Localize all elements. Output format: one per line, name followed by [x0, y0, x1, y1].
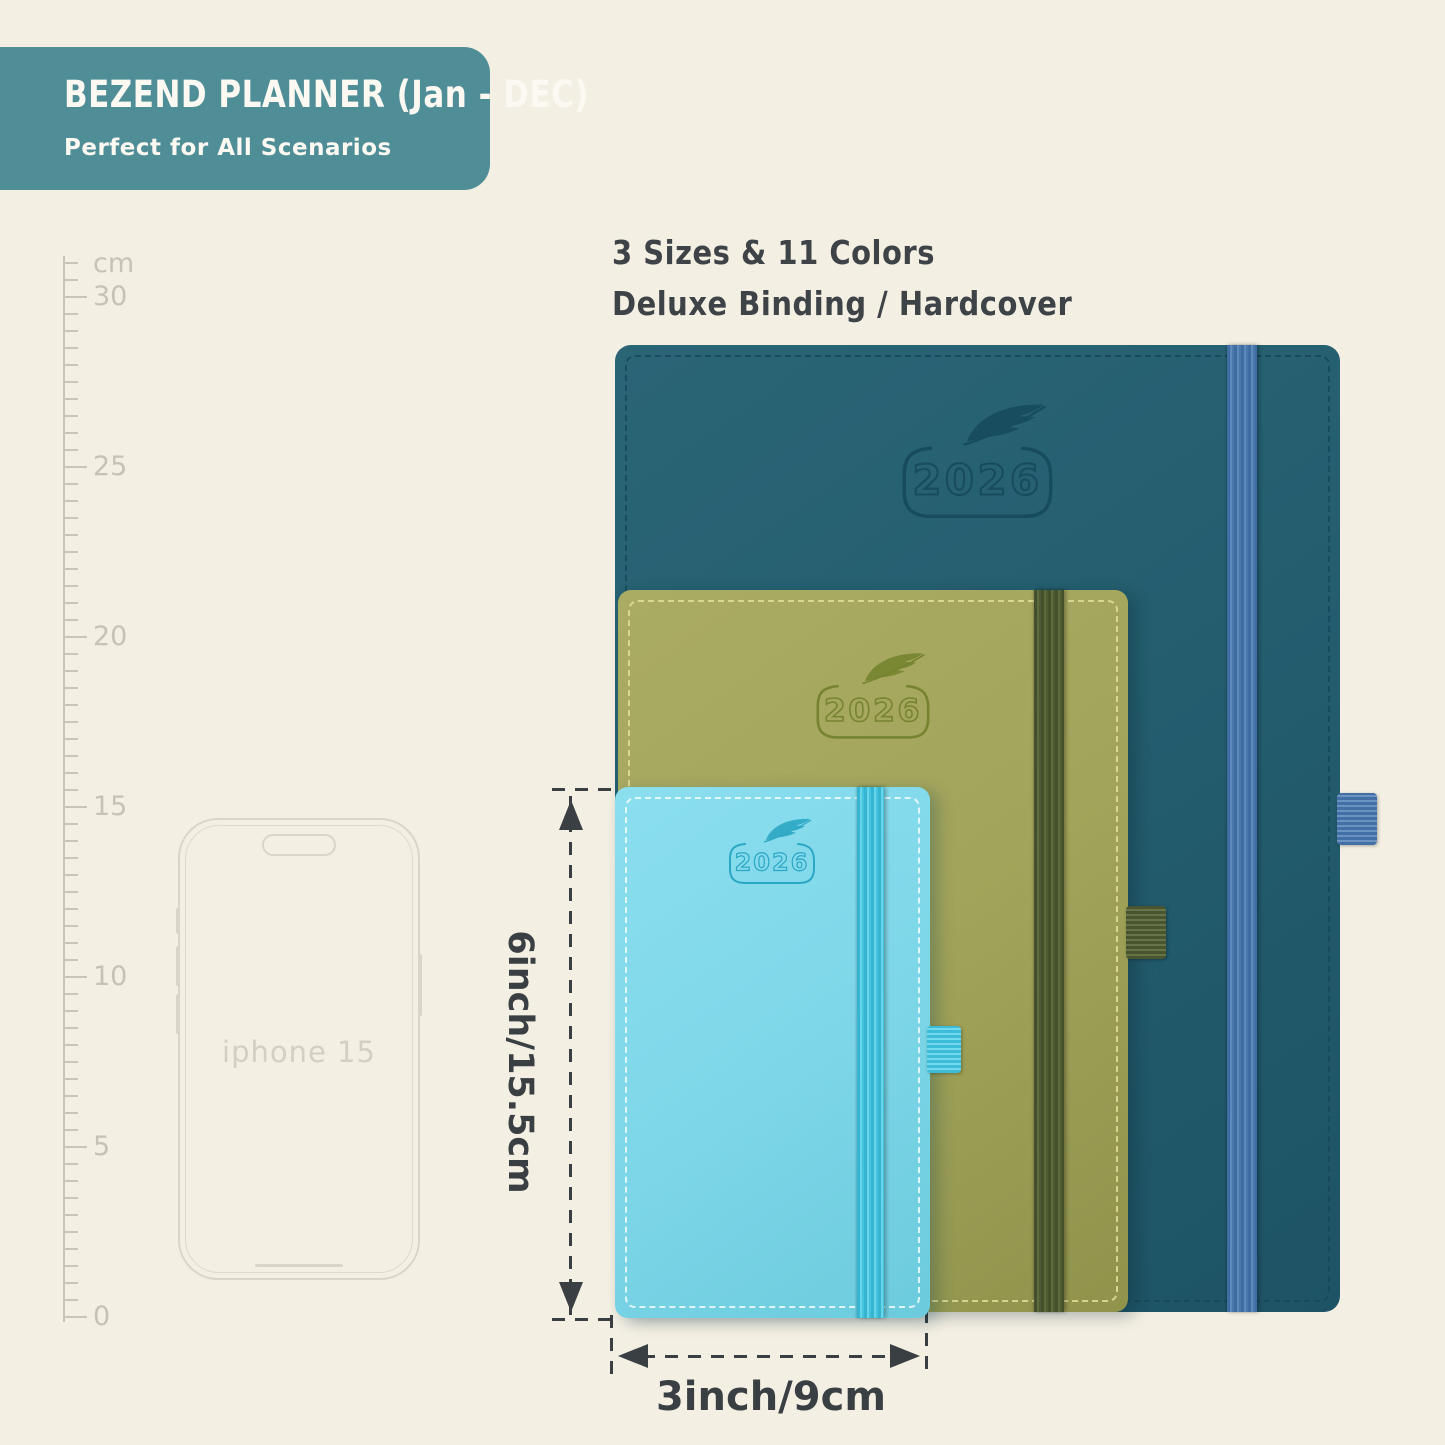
feather-icon — [766, 819, 810, 840]
width-label: 3inch/9cm — [656, 1374, 886, 1420]
pen-loop — [1126, 906, 1166, 959]
planner-small-blue: 2026 — [615, 787, 930, 1318]
feather-icon — [967, 405, 1044, 442]
svg-text:2026: 2026 — [824, 693, 922, 729]
iphone-label: iphone 15 — [180, 1035, 418, 1069]
dynamic-island — [262, 834, 336, 856]
volume-down-button — [176, 994, 180, 1034]
elastic-band — [1034, 590, 1064, 1312]
product-infographic: BEZEND PLANNER (Jan - DEC) Perfect for A… — [0, 0, 1445, 1445]
arrow-right — [890, 1344, 920, 1368]
ruler-unit-label: cm — [93, 248, 134, 279]
height-label: 6inch/15.5cm — [500, 930, 540, 1193]
banner-title: BEZEND PLANNER (Jan - DEC) — [64, 73, 589, 117]
home-indicator — [255, 1264, 343, 1267]
ruler-number-label: 0 — [93, 1301, 110, 1332]
headline-sizes-colors: 3 Sizes & 11 Colors — [612, 234, 1072, 272]
svg-text:2026: 2026 — [912, 456, 1042, 505]
headline: 3 Sizes & 11 Colors Deluxe Binding / Har… — [612, 234, 1072, 336]
banner: BEZEND PLANNER (Jan - DEC) Perfect for A… — [0, 47, 490, 190]
power-button — [418, 954, 422, 1016]
pen-loop — [1337, 793, 1377, 845]
arrow-down — [559, 1282, 583, 1312]
ruler-number-label: 25 — [93, 451, 127, 482]
year-2026-logo: 2026 — [807, 652, 939, 744]
year-2026-logo: 2026 — [722, 818, 822, 888]
guide-right — [925, 1310, 928, 1379]
ruler-number-label: 20 — [93, 621, 127, 652]
ruler-number-label: 5 — [93, 1131, 110, 1162]
iphone-outline: iphone 15 — [178, 818, 420, 1280]
elastic-band — [857, 787, 884, 1318]
volume-up-button — [176, 946, 180, 986]
ruler-number-label: 30 — [93, 281, 127, 312]
banner-subtitle: Perfect for All Scenarios — [64, 135, 392, 161]
ruler-number-label: 15 — [93, 791, 127, 822]
svg-text:2026: 2026 — [735, 849, 810, 877]
ruler-number-label: 10 — [93, 961, 127, 992]
elastic-band — [1227, 345, 1257, 1312]
arrow-left — [618, 1344, 648, 1368]
year-2026-logo: 2026 — [890, 403, 1065, 525]
guide-left — [610, 1315, 613, 1379]
arrow-up — [559, 800, 583, 830]
measure-tick-top — [552, 788, 614, 791]
headline-binding: Deluxe Binding / Hardcover — [612, 285, 1072, 323]
measure-tick-bottom — [552, 1318, 614, 1321]
measure-line-vertical — [569, 796, 572, 1318]
feather-icon — [865, 653, 923, 681]
measure-line-horizontal — [642, 1355, 900, 1358]
pen-loop — [927, 1026, 961, 1073]
action-button — [176, 908, 180, 934]
